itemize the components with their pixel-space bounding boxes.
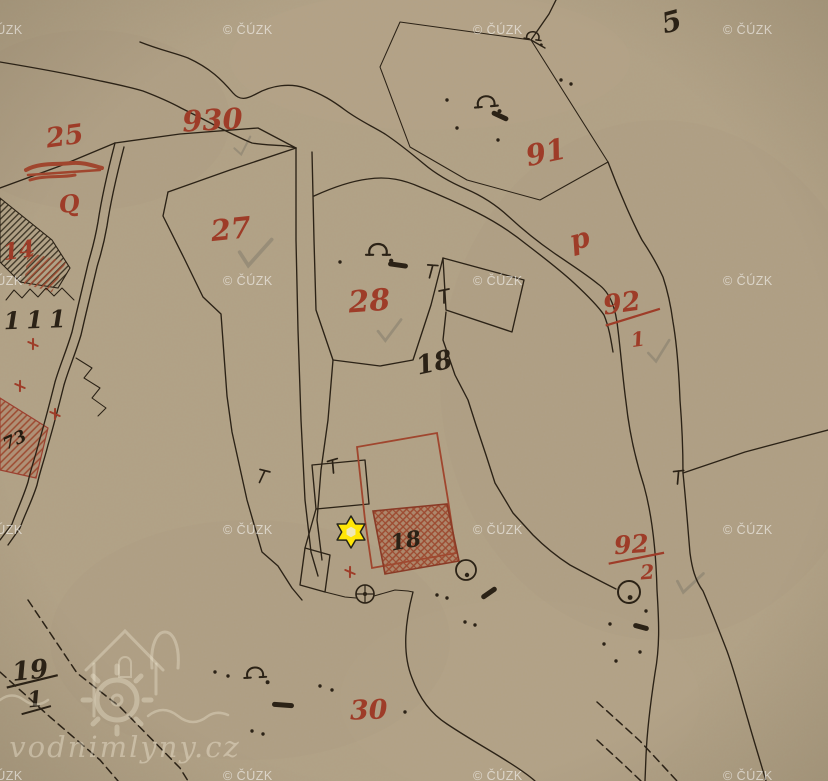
- ink-dot: [435, 593, 438, 596]
- ink-dot: [250, 729, 253, 732]
- parcel-label-25: 25: [43, 119, 86, 155]
- ink-dot: [559, 78, 562, 81]
- cuzk-watermark-text: © ČÚZK: [0, 22, 23, 37]
- vignette: [0, 0, 828, 781]
- cuzk-watermark-text: © ČÚZK: [223, 22, 273, 37]
- ink-dot: [569, 82, 572, 85]
- cuzk-watermark-text: © ČÚZK: [473, 22, 523, 37]
- ink-dot: [445, 596, 448, 599]
- ink-dot: [602, 642, 605, 645]
- ink-dot: [338, 260, 341, 263]
- building-label-18: 18: [388, 526, 423, 557]
- ink-blob: [391, 264, 406, 266]
- ink-dot: [403, 710, 406, 713]
- cuzk-watermark-text: © ČÚZK: [473, 273, 523, 288]
- ink-dot: [318, 684, 321, 687]
- cuzk-watermark-text: © ČÚZK: [723, 22, 773, 37]
- map-viewport[interactable]: 25930Q272891p30145111181873921922191 © Č…: [0, 0, 828, 781]
- cadastral-map-image: 25930Q272891p30145111181873921922191 © Č…: [0, 0, 828, 781]
- parcel-label-14: 14: [1, 235, 36, 266]
- ink-dot: [455, 126, 458, 129]
- ink-blob: [275, 704, 292, 705]
- ink-dot: [638, 650, 641, 653]
- ink-dot: [608, 622, 611, 625]
- red-q-mark: Q: [57, 188, 81, 219]
- parcel-label-930: 930: [181, 101, 243, 138]
- parcel-label-28: 28: [346, 283, 391, 321]
- site-watermark-text: vodnimlyny.cz: [9, 730, 240, 764]
- cuzk-watermark-text: © ČÚZK: [0, 522, 23, 537]
- ink-dot: [644, 609, 647, 612]
- ink-dot: [614, 659, 617, 662]
- cuzk-watermark-text: © ČÚZK: [223, 768, 273, 781]
- ink-dot: [330, 688, 333, 691]
- ink-dot: [496, 138, 499, 141]
- cuzk-watermark-text: © ČÚZK: [0, 768, 23, 781]
- cuzk-watermark-text: © ČÚZK: [223, 273, 273, 288]
- ink-dot: [463, 620, 466, 623]
- ink-dot: [213, 670, 216, 673]
- parcel-label-92-2-numerator: 92: [613, 529, 650, 560]
- cuzk-watermark-text: © ČÚZK: [223, 522, 273, 537]
- ink-blob: [636, 626, 647, 629]
- cuzk-watermark-text: © ČÚZK: [473, 522, 523, 537]
- parcel-label-92-2-denominator: 2: [639, 560, 656, 585]
- ink-dot: [226, 674, 229, 677]
- house-label-111: 111: [3, 304, 72, 335]
- parcel-label-30: 30: [349, 694, 388, 726]
- ink-dot: [445, 98, 448, 101]
- parcel-label-27: 27: [208, 210, 253, 248]
- cuzk-watermark-text: © ČÚZK: [473, 768, 523, 781]
- ink-dot: [261, 732, 264, 735]
- cuzk-watermark-text: © ČÚZK: [0, 273, 23, 288]
- ink-dot: [473, 623, 476, 626]
- cuzk-watermark-text: © ČÚZK: [723, 273, 773, 288]
- mill-wheel-symbol: [356, 585, 374, 603]
- cuzk-watermark-text: © ČÚZK: [723, 522, 773, 537]
- cuzk-watermark-text: © ČÚZK: [723, 768, 773, 781]
